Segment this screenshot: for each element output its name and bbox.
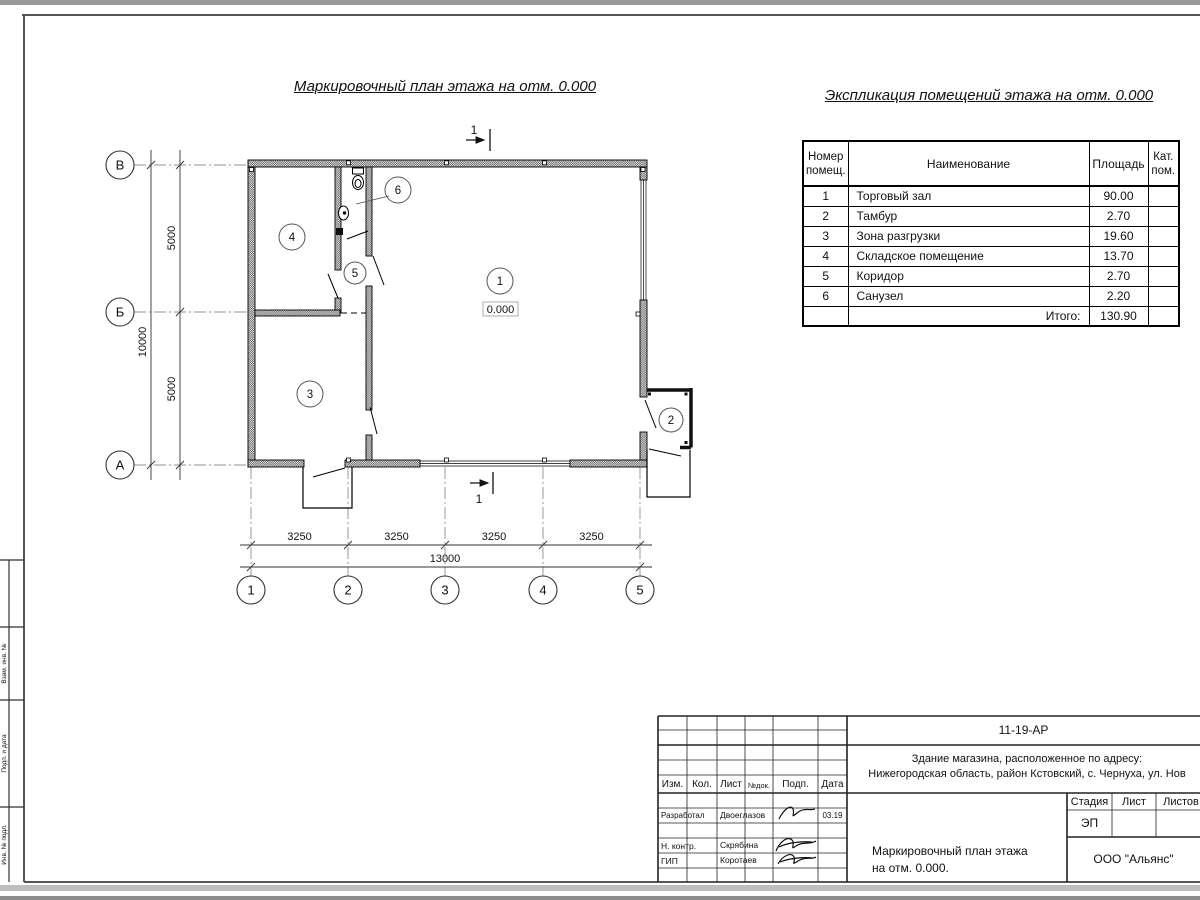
drawing-title: Маркировочный план этажа на отм. 0.000. <box>872 843 1062 877</box>
col-header-ndoc: №док. <box>745 781 773 790</box>
room-name: Тамбур <box>848 206 1089 226</box>
axis-number-5: 5 <box>636 583 643 598</box>
sheets-label: Листов <box>1156 796 1200 808</box>
col-header-area: Площадь <box>1089 141 1148 186</box>
room-number: 4 <box>803 246 848 266</box>
signature-razrabotal <box>779 807 815 819</box>
section-label: 1 <box>476 492 483 506</box>
floor-plan: 1 1 В Б А 1 2 3 4 <box>106 123 691 604</box>
role-razrabotal: Разработал <box>661 811 716 820</box>
room-area: 19.60 <box>1089 226 1148 246</box>
axis-number-3: 3 <box>441 583 448 598</box>
axis-number-1: 1 <box>247 583 254 598</box>
total-area: 130.90 <box>1089 306 1148 326</box>
room-area: 2.70 <box>1089 266 1148 286</box>
room-name: Торговый зал <box>848 186 1089 206</box>
room-number: 5 <box>803 266 848 286</box>
dim-label-5000-bottom: 5000 <box>166 377 178 401</box>
col-header-name: Наименование <box>848 141 1089 186</box>
col-header-category: Кат.пом. <box>1148 141 1179 186</box>
room-category <box>1148 246 1179 266</box>
axis-letter-a: А <box>116 458 125 473</box>
name-dvoeglazov: Двоеглазов <box>720 810 773 820</box>
porches <box>303 450 690 508</box>
room-name: Коридор <box>848 266 1089 286</box>
room-marker-2: 2 <box>668 415 674 427</box>
drawing-sheet: { "sheet": { "stamp_strip": ["Взам. инв.… <box>0 0 1200 900</box>
role-gip: ГИП <box>661 856 716 866</box>
room-area: 90.00 <box>1089 186 1148 206</box>
room-area: 13.70 <box>1089 246 1148 266</box>
room-marker-6: 6 <box>395 185 401 197</box>
elevation-label: 0.000 <box>487 304 515 316</box>
table-row: 3 Зона разгрузки 19.60 <box>803 226 1179 246</box>
axis-lines <box>134 165 640 576</box>
room-category <box>1148 206 1179 226</box>
windows <box>420 180 646 466</box>
sheet-label: Лист <box>1112 796 1156 808</box>
company-name: ООО "Альянс" <box>1067 852 1200 866</box>
axis-number-2: 2 <box>344 583 351 598</box>
room-area: 2.70 <box>1089 206 1148 226</box>
table-row: 4 Складское помещение 13.70 <box>803 246 1179 266</box>
axis-letter-v: В <box>116 158 125 173</box>
signature-nkontr <box>776 839 816 851</box>
signature-gip <box>778 855 816 864</box>
table-row: 5 Коридор 2.70 <box>803 266 1179 286</box>
section-mark-bottom: 1 <box>470 472 493 506</box>
col-header-izm: Изм. <box>658 779 687 790</box>
table-row: 1 Торговый зал 90.00 <box>803 186 1179 206</box>
room-category <box>1148 186 1179 206</box>
dim-label-5000-top: 5000 <box>166 226 178 250</box>
section-label: 1 <box>471 123 478 137</box>
dim-lines-left <box>147 150 184 480</box>
table-row: 6 Санузел 2.20 <box>803 286 1179 306</box>
col-header-kol: Кол. <box>687 779 717 790</box>
col-header-list: Лист <box>717 779 745 790</box>
room-marker-4: 4 <box>289 232 296 244</box>
dim-label-10000: 10000 <box>137 327 149 358</box>
room-number: 2 <box>803 206 848 226</box>
room-category <box>1148 286 1179 306</box>
col-header-number: Номерпомещ. <box>803 141 848 186</box>
role-nkontr: Н. контр. <box>661 841 716 851</box>
section-mark-top: 1 <box>466 123 490 151</box>
room-name: Складское помещение <box>848 246 1089 266</box>
col-header-data: Дата <box>818 779 847 790</box>
axis-number-4: 4 <box>539 583 546 598</box>
room-marker-1: 1 <box>497 276 503 288</box>
total-label: Итого: <box>848 306 1089 326</box>
sink-icon <box>339 206 349 220</box>
stamp-label-vzam: Взам. инв. № <box>1 643 8 683</box>
room-number: 6 <box>803 286 848 306</box>
name-skryabina: Скрябина <box>720 840 773 850</box>
signatures <box>776 807 816 864</box>
stamp-label-podp: Подп. и дата <box>1 734 8 773</box>
table-total-row: Итого: 130.90 <box>803 306 1179 326</box>
wall-fixture-mark <box>336 228 343 235</box>
stamp-strip-labels: Взам. инв. № Подп. и дата Инв. № подл. <box>1 643 8 864</box>
dim-label-3250-2: 3250 <box>384 531 408 543</box>
dim-label-3250-3: 3250 <box>482 531 506 543</box>
axis-letter-b: Б <box>116 305 125 320</box>
walls <box>248 160 647 467</box>
room-name: Санузел <box>848 286 1089 306</box>
dim-label-13000: 13000 <box>430 553 461 565</box>
plan-title: Маркировочный план этажа на отм. 0.000 <box>240 78 650 95</box>
stage-label: Стадия <box>1067 796 1112 808</box>
dim-label-3250-1: 3250 <box>287 531 311 543</box>
date-value: 03.19 <box>818 811 847 820</box>
doc-number: 11-19-АР <box>847 723 1200 737</box>
room-name: Зона разгрузки <box>848 226 1089 246</box>
explication-title: Экспликация помещений этажа на отм. 0.00… <box>800 87 1178 104</box>
stamp-label-inv: Инв. № подл. <box>1 824 8 865</box>
room-marker-3: 3 <box>307 389 313 401</box>
toilet-icon <box>353 168 364 190</box>
room-category <box>1148 266 1179 286</box>
table-row: 2 Тамбур 2.70 <box>803 206 1179 226</box>
object-address: Здание магазина, расположенное по адресу… <box>847 752 1200 782</box>
room-category <box>1148 226 1179 246</box>
explication-table: Номерпомещ. Наименование Площадь Кат.пом… <box>802 140 1180 327</box>
room6-leader-line <box>356 196 389 204</box>
stage-value: ЭП <box>1067 816 1112 830</box>
room-number: 3 <box>803 226 848 246</box>
col-header-podp: Подп. <box>773 779 818 790</box>
room-marker-5: 5 <box>352 268 358 280</box>
name-korotaev: Коротаев <box>720 855 773 865</box>
room-area: 2.20 <box>1089 286 1148 306</box>
dim-label-3250-4: 3250 <box>579 531 603 543</box>
room-number: 1 <box>803 186 848 206</box>
